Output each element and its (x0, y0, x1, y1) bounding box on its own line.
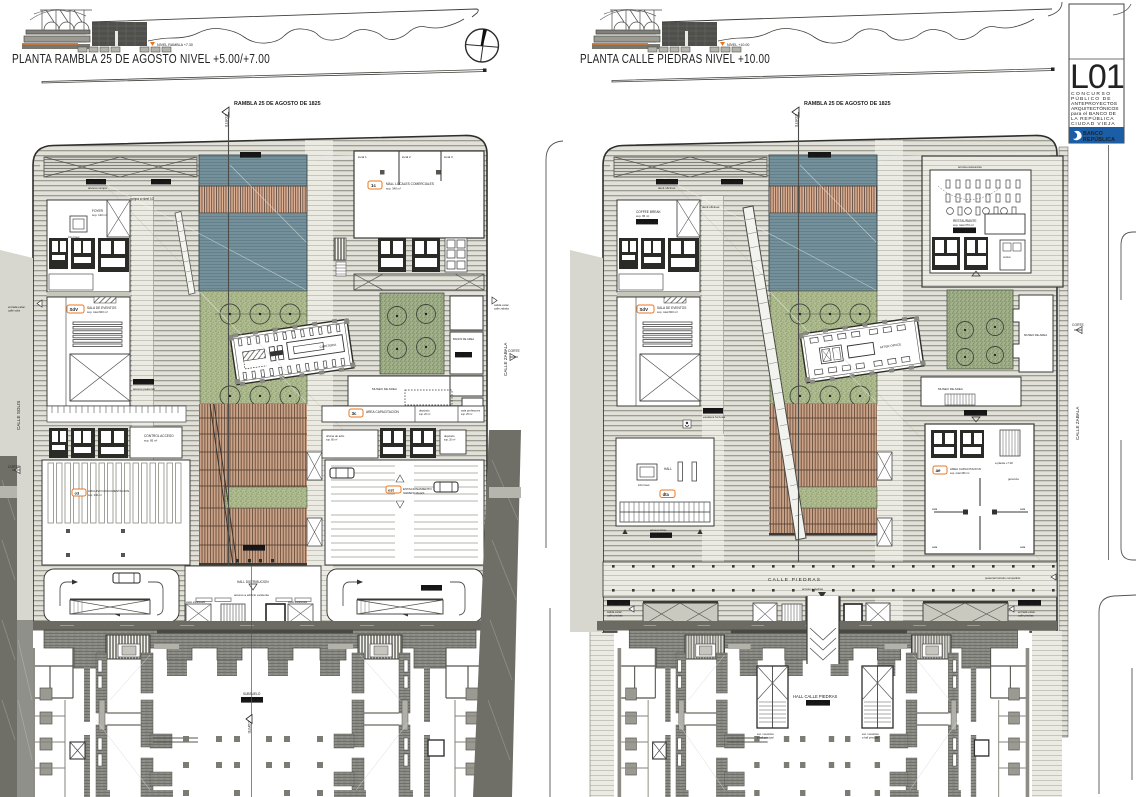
svg-text:CORTE: CORTE (224, 114, 228, 128)
svg-text:NIV +7.00: NIV +7.00 (153, 181, 170, 185)
svg-text:depósito: depósito (444, 434, 455, 438)
svg-text:NIV +10.00: NIV +10.00 (609, 602, 628, 606)
svg-text:cocina: cocina (1003, 255, 1011, 259)
svg-text:GERENCIALES: GERENCIALES (403, 491, 424, 495)
svg-text:NIV +10.00: NIV +10.00 (658, 181, 677, 185)
svg-text:ARCHIVO DOCUMENTACION: ARCHIVO DOCUMENTACION (88, 489, 129, 493)
svg-text:a hall principal: a hall principal (862, 735, 879, 739)
svg-text:sup. 120 m²: sup. 120 m² (92, 213, 107, 217)
svg-text:calle solis: calle solis (8, 309, 21, 313)
svg-text:HALL: HALL (664, 467, 672, 471)
svg-text:NIV +7.00: NIV +7.00 (423, 587, 440, 591)
svg-text:SUBSUELO: SUBSUELO (243, 692, 261, 696)
svg-text:acceso rampa: acceso rampa (88, 186, 107, 190)
svg-text:LA REPÚBLICA: LA REPÚBLICA (1071, 115, 1114, 122)
svg-text:ae: ae (936, 468, 941, 473)
svg-text:HALL DISTRIBUCION: HALL DISTRIBUCION (237, 580, 269, 584)
svg-text:sup. 20 m²: sup. 20 m² (419, 413, 430, 416)
svg-text:informes: informes (638, 483, 650, 487)
svg-text:SdV: SdV (640, 307, 649, 312)
svg-text:RAMBLA 25 DE AGOSTO DE 1825: RAMBLA 25 DE AGOSTO DE 1825 (234, 101, 321, 107)
svg-text:NIV +4.00: NIV +4.00 (705, 410, 722, 414)
svg-text:CIUDAD VIEJA: CIUDAD VIEJA (1071, 121, 1116, 127)
svg-text:NIV +7.30: NIV +7.30 (808, 702, 825, 706)
svg-text:local 3: local 3 (444, 155, 453, 159)
svg-text:NIV +10.00: NIV +10.00 (652, 534, 671, 538)
svg-text:CALLE ZABALA: CALLE ZABALA (1075, 406, 1080, 440)
svg-text:local 1: local 1 (358, 155, 367, 159)
svg-text:gerencia: gerencia (1008, 477, 1019, 481)
svg-text:vacio s/subsuelo: vacio s/subsuelo (186, 600, 206, 604)
svg-text:SdV: SdV (70, 307, 79, 312)
svg-text:deck oficinas: deck oficinas (658, 186, 676, 190)
svg-text:HALL CALLE PIEDRAS: HALL CALLE PIEDRAS (793, 694, 838, 699)
svg-text:sala: sala (1020, 545, 1026, 549)
svg-text:acceso c.piedras: acceso c.piedras (802, 587, 824, 591)
svg-text:vacio s/subsuelo: vacio s/subsuelo (288, 600, 308, 604)
svg-text:sup. 85 m²: sup. 85 m² (144, 439, 157, 443)
svg-text:sala profesores: sala profesores (461, 408, 481, 412)
svg-text:rampa a nivel 10: rampa a nivel 10 (130, 197, 154, 201)
svg-text:MUSEO DE AREA: MUSEO DE AREA (938, 387, 963, 391)
svg-text:MUSEO DE AREA: MUSEO DE AREA (372, 387, 397, 391)
svg-text:sup. 340 m²: sup. 340 m² (386, 186, 401, 190)
svg-text:NIV +10.00: NIV +10.00 (955, 229, 974, 233)
svg-text:CALLE SOLIS: CALLE SOLIS (16, 401, 21, 430)
svg-text:local 2: local 2 (402, 155, 411, 159)
svg-text:CORTE: CORTE (508, 349, 521, 353)
svg-text:L01: L01 (1070, 58, 1124, 96)
svg-text:NIV +7.00: NIV +7.00 (457, 354, 472, 358)
svg-text:NIV +7.00: NIV +7.00 (88, 181, 105, 185)
svg-text:sala: sala (932, 545, 938, 549)
svg-text:sup. 20 m²: sup. 20 m² (444, 439, 455, 442)
svg-text:acceso brou: acceso brou (650, 528, 667, 532)
svg-text:est: est (388, 487, 394, 492)
svg-text:1c: 1c (371, 183, 376, 188)
svg-text:depósito: depósito (419, 408, 430, 412)
svg-text:CORTE: CORTE (794, 114, 798, 128)
svg-text:calle zabala: calle zabala (494, 307, 509, 311)
svg-text:REPÚBLICA: REPÚBLICA (1083, 136, 1115, 143)
svg-text:sala: sala (932, 507, 938, 511)
svg-text:sup. total 600 m²: sup. total 600 m² (87, 310, 108, 314)
svg-text:MALL LOCALES COMERCIALES: MALL LOCALES COMERCIALES (386, 182, 434, 186)
svg-text:BANOS DE AREA: BANOS DE AREA (453, 337, 474, 341)
svg-text:NIVEL RAMBLA +7.30: NIVEL RAMBLA +7.30 (157, 43, 193, 47)
svg-text:PLANTA RAMBLA 25 DE AGOSTO NIV: PLANTA RAMBLA 25 DE AGOSTO NIVEL +5.00/+… (12, 51, 270, 66)
svg-text:PÚBLICO DE: PÚBLICO DE (1071, 95, 1112, 102)
svg-text:peatonal tránsito compartido: peatonal tránsito compartido (985, 576, 1021, 580)
svg-text:sup. total 600 m²: sup. total 600 m² (657, 310, 678, 314)
svg-text:esc. mecánica: esc. mecánica (862, 732, 879, 736)
svg-text:sup. 340 m²: sup. 340 m² (88, 493, 102, 497)
svg-text:MUSEO DE AREA: MUSEO DE AREA (1024, 333, 1047, 337)
svg-text:calle piedras: calle piedras (1018, 614, 1034, 618)
svg-text:AREA CAPACITACION: AREA CAPACITACION (950, 467, 981, 471)
svg-text:acceso peatonal: acceso peatonal (133, 387, 155, 391)
svg-text:a hall principal: a hall principal (757, 735, 774, 739)
svg-text:AREA CAPACITACION: AREA CAPACITACION (366, 410, 400, 414)
svg-text:NIVEL +10.00: NIVEL +10.00 (727, 43, 749, 47)
svg-text:escalera forzosa: escalera forzosa (703, 415, 725, 419)
svg-text:CORTE: CORTE (247, 721, 251, 734)
svg-text:o3: o3 (75, 490, 80, 495)
svg-text:NIV +5.00: NIV +5.00 (242, 153, 261, 158)
svg-text:sup. 80 m²: sup. 80 m² (326, 439, 337, 442)
svg-text:CONTROL ACCESO: CONTROL ACCESO (144, 434, 174, 438)
svg-text:oficina de adm.: oficina de adm. (326, 434, 345, 438)
svg-text:esc. mecánica: esc. mecánica (757, 732, 774, 736)
svg-text:CALLE ZABALA: CALLE ZABALA (503, 342, 508, 376)
svg-text:NIV +10.00: NIV +10.00 (1020, 602, 1039, 606)
svg-text:sup. 95 m²: sup. 95 m² (636, 214, 649, 218)
svg-text:NIV +10.00: NIV +10.00 (810, 153, 831, 158)
svg-text:sup. 25 m²: sup. 25 m² (461, 413, 472, 416)
svg-text:PLANTA CALLE PIEDRAS NIVEL +10: PLANTA CALLE PIEDRAS NIVEL +10.00 (580, 51, 770, 66)
svg-text:deck oficinas: deck oficinas (702, 205, 720, 209)
svg-text:NIV +10.00: NIV +10.00 (638, 221, 657, 225)
svg-text:RAMBLA 25 DE AGOSTO DE 1825: RAMBLA 25 DE AGOSTO DE 1825 (804, 101, 891, 107)
svg-text:sala: sala (1020, 507, 1026, 511)
svg-text:CALLE PIEDRAS: CALLE PIEDRAS (768, 577, 821, 583)
svg-text:sup. total 460 m²: sup. total 460 m² (950, 471, 969, 475)
svg-text:CORTE: CORTE (1072, 323, 1085, 327)
svg-text:dta: dta (663, 492, 670, 497)
svg-text:terraza-restaurante: terraza-restaurante (958, 165, 982, 169)
svg-text:3c: 3c (352, 411, 357, 416)
svg-text:NIV +10.00: NIV +10.00 (723, 181, 742, 185)
svg-text:NIV +2.40: NIV +2.40 (245, 547, 262, 551)
svg-text:sup. total 370 m²: sup. total 370 m² (953, 223, 974, 227)
svg-text:NIV +10.00: NIV +10.00 (966, 412, 985, 416)
svg-text:a planta +7.00: a planta +7.00 (995, 461, 1013, 465)
svg-text:NIV +7.00: NIV +7.00 (135, 381, 152, 385)
svg-text:ARQUITECTÓNICOS: ARQUITECTÓNICOS (1071, 105, 1119, 112)
svg-text:calle piedras: calle piedras (607, 614, 623, 618)
